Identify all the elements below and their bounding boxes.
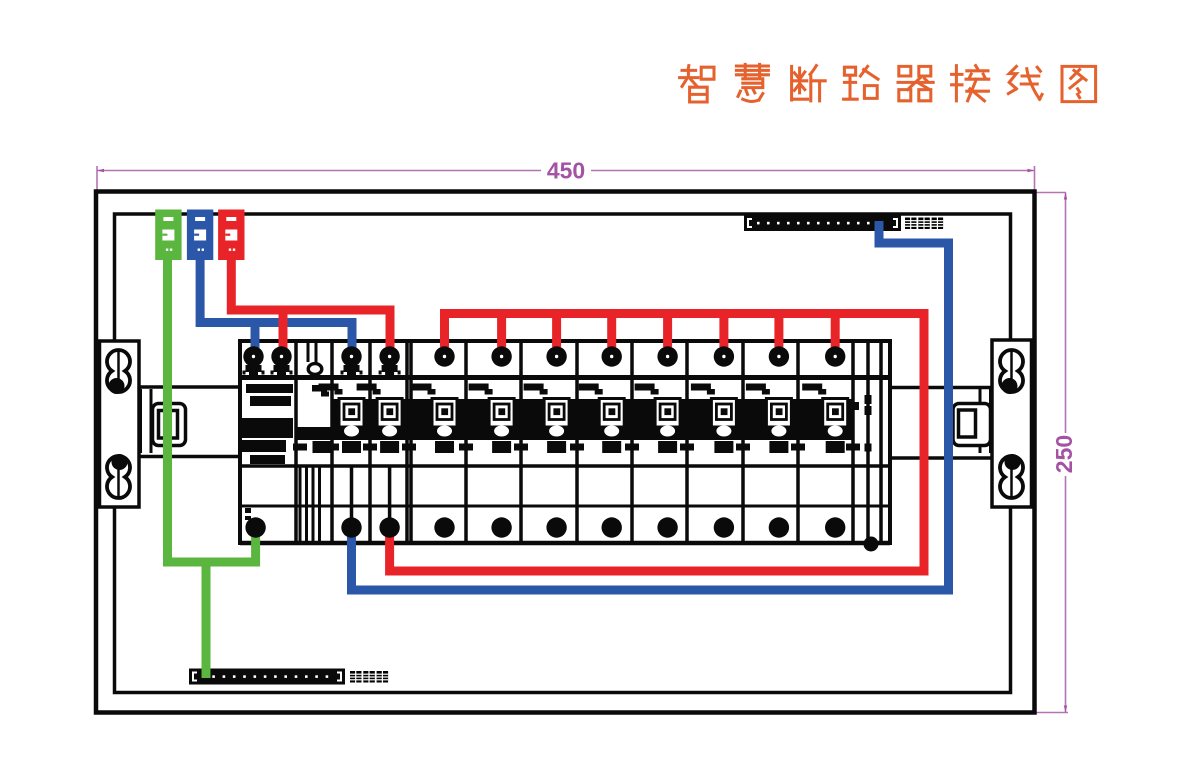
svg-text:450: 450: [547, 158, 585, 184]
svg-text:250: 250: [1051, 435, 1077, 473]
